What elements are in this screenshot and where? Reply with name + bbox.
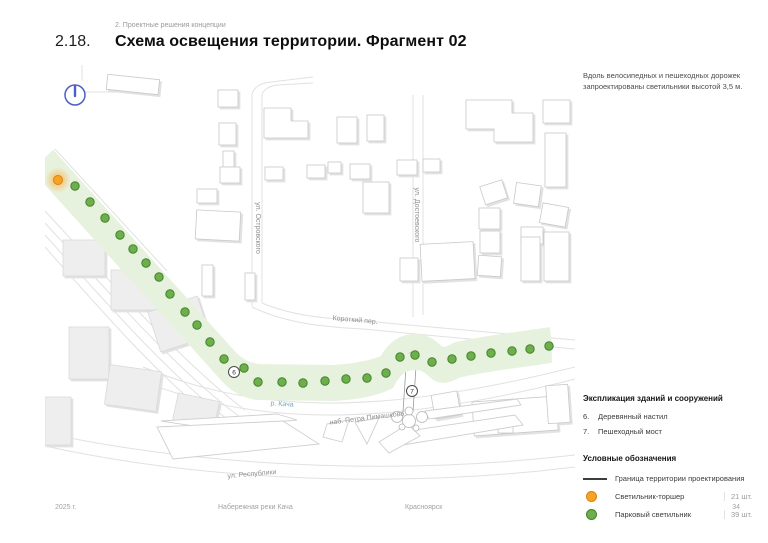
- document-page: 2. Проектные решения концепции 2.18. Схе…: [0, 0, 768, 543]
- park-light-dot: [363, 374, 371, 382]
- park-light-dot: [86, 198, 94, 206]
- park-light-dot: [129, 245, 137, 253]
- compass-north-icon: [65, 85, 85, 105]
- park-light-dot: [116, 231, 124, 239]
- torch-count: 21 шт.: [724, 492, 763, 501]
- park-light-dot: [396, 353, 404, 361]
- park-light-dot: [342, 375, 350, 383]
- breadcrumb: 2. Проектные решения концепции: [115, 22, 226, 29]
- park-light-dot: [181, 308, 189, 316]
- footer-city: Красноярск: [405, 504, 442, 511]
- park-light-dot: [545, 342, 553, 350]
- footer-page-number: 34: [732, 504, 740, 511]
- boundary-line-swatch: [583, 478, 607, 480]
- svg-text:7: 7: [410, 389, 414, 396]
- park-light-dot: [508, 347, 516, 355]
- park-light-dot: [254, 378, 262, 386]
- explication-item: 7. Пешеходный мост: [583, 427, 763, 436]
- footer-project: Набережная реки Кача: [218, 504, 293, 511]
- svg-text:6: 6: [232, 370, 236, 377]
- marker-bridge: 7: [407, 386, 418, 397]
- park-light-dot: [240, 364, 248, 372]
- map-svg: 6 7 ул. Островского ул. Достоевского Кор…: [45, 65, 575, 513]
- park-light-dot: [428, 358, 436, 366]
- street-label-dostoevskogo: ул. Достоевского: [413, 188, 420, 243]
- symbols-title: Условные обозначения: [583, 454, 763, 463]
- park-light-dot: [382, 369, 390, 377]
- park-light-dot: [487, 349, 495, 357]
- park-light-icon: [586, 509, 597, 520]
- site-map: 6 7 ул. Островского ул. Достоевского Кор…: [45, 65, 575, 513]
- park-light-dot: [278, 378, 286, 386]
- torch-light-dot: [54, 176, 63, 185]
- park-light-dot: [299, 379, 307, 387]
- park-light-dot: [526, 345, 534, 353]
- park-light-dot: [321, 377, 329, 385]
- title-row: 2.18. Схема освещения территории. Фрагме…: [55, 33, 467, 51]
- torch-light-icon: [586, 491, 597, 502]
- street-label-ostrovskogo: ул. Островского: [254, 202, 261, 254]
- park-light-dot: [467, 352, 475, 360]
- park-count: 39 шт.: [724, 510, 763, 519]
- section-number: 2.18.: [55, 33, 115, 51]
- legend-row-torch: Светильник-торшер 21 шт.: [583, 490, 763, 503]
- footer-year: 2025 г.: [55, 504, 76, 511]
- street-label-korotkiy: Короткий пер.: [332, 314, 378, 326]
- park-light-dot: [142, 259, 150, 267]
- street-label-respubliki: ул. Республики: [227, 468, 277, 480]
- explication-title: Экспликация зданий и сооружений: [583, 394, 763, 403]
- river-label-kacha: р. Кача: [270, 400, 294, 409]
- page-title: Схема освещения территории. Фрагмент 02: [115, 33, 467, 51]
- legend-row-boundary: Граница территории проектирования: [583, 472, 763, 485]
- park-light-dot: [155, 273, 163, 281]
- park-light-dot: [411, 351, 419, 359]
- marker-decking: 6: [229, 367, 240, 378]
- park-light-dot: [101, 214, 109, 222]
- annotation-note: Вдоль велосипедных и пешеходных дорожек …: [583, 70, 757, 93]
- park-light-dot: [220, 355, 228, 363]
- park-light-dot: [166, 290, 174, 298]
- explication-item: 6. Деревянный настил: [583, 412, 763, 421]
- park-light-dot: [193, 321, 201, 329]
- park-light-dot: [448, 355, 456, 363]
- park-light-dot: [71, 182, 79, 190]
- park-light-dot: [206, 338, 214, 346]
